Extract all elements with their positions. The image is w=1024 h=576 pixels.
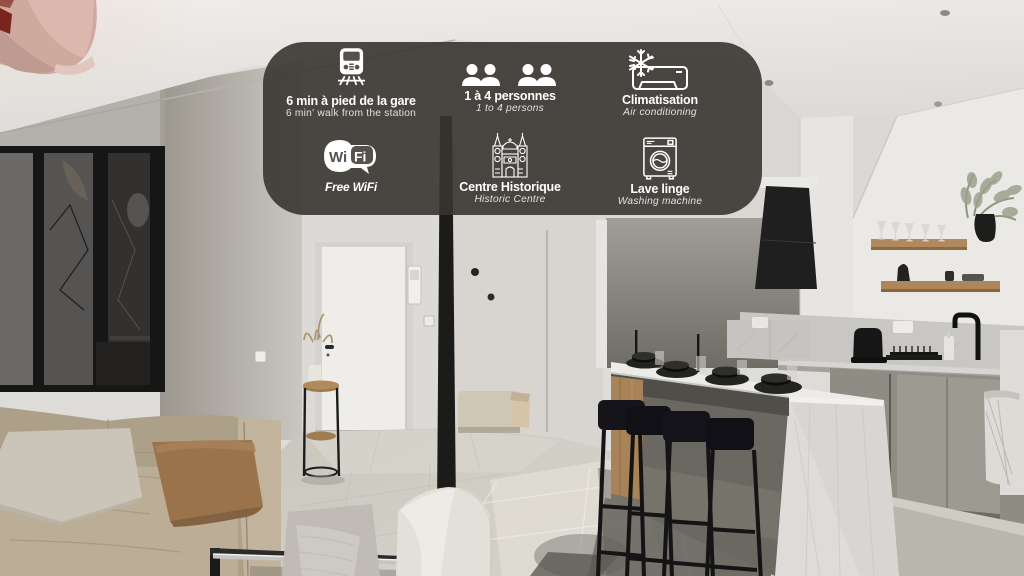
svg-text:Fi: Fi — [354, 149, 366, 165]
svg-text:Wi: Wi — [329, 149, 347, 166]
